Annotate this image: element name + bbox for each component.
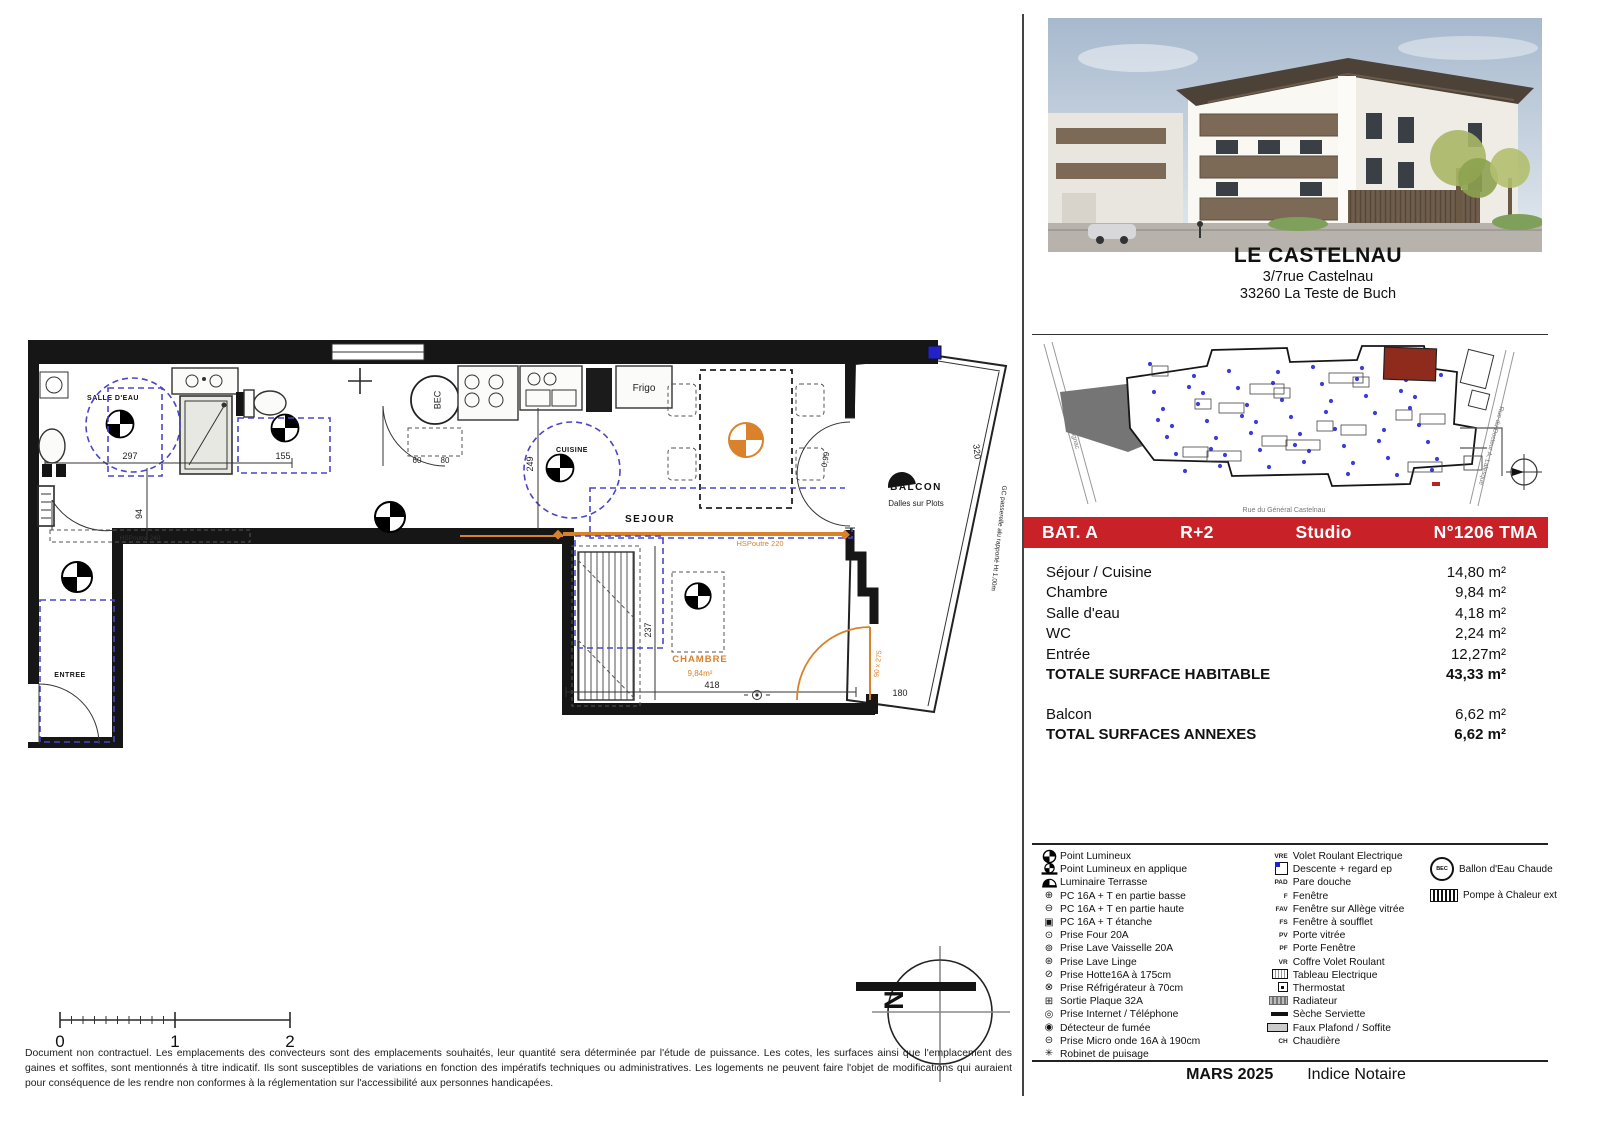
wardrobe	[578, 552, 634, 700]
unit-highlight	[1383, 347, 1436, 381]
legend-label: Prise Lave Vaisselle 20A	[1060, 943, 1173, 954]
legend-item: Point Lumineux	[1038, 850, 1264, 863]
room-label-sejour: SEJOUR	[625, 514, 675, 525]
pac-icon	[1430, 889, 1458, 902]
legend-column-1: Point LumineuxPoint Lumineux en applique…	[1032, 850, 1264, 1060]
legend-item: Faux Plafond / Soffite	[1264, 1021, 1430, 1034]
legend-abbr: FS	[1264, 919, 1288, 926]
legend-abbr: PAD	[1264, 879, 1288, 886]
legend-item: ⊚Prise Lave Vaisselle 20A	[1038, 942, 1264, 955]
legend-label: Porte vitrée	[1293, 930, 1346, 941]
legend-item: FAVFenêtre sur Allège vitrée	[1264, 903, 1430, 916]
legend-column-2: VREVolet Roulant ElectriqueDescente + re…	[1264, 850, 1430, 1060]
descente-ep-icon	[1264, 862, 1288, 877]
legend-label: Pompe à Chaleur ext	[1463, 890, 1557, 901]
info-panel: LE CASTELNAU 3/7rue Castelnau 33260 La T…	[1022, 14, 1548, 1096]
surface-row: Entrée12,27m²	[1046, 644, 1508, 665]
project-address-1: 3/7rue Castelnau	[1088, 269, 1548, 285]
legend-item: PVPorte vitrée	[1264, 929, 1430, 942]
surface-label: Chambre	[1046, 584, 1396, 601]
floor-plan-drawing: BALCON Dalles sur Plots 320 180 GC passe…	[0, 0, 1020, 1130]
seche-serviette-icon	[1264, 1011, 1288, 1018]
scale-bar: 0 1 2	[55, 1012, 294, 1051]
banner-type: Studio	[1296, 522, 1352, 543]
prise-hotte-icon: ⊘	[1038, 970, 1060, 980]
thermostat-icon	[1264, 982, 1288, 994]
footer: MARS 2025 Indice Notaire	[1034, 1066, 1558, 1084]
banner-batiment: BAT. A	[1042, 522, 1098, 543]
title-block: LE CASTELNAU 3/7rue Castelnau 33260 La T…	[1024, 244, 1548, 302]
robinet-puisage-icon: ✳	[1038, 1049, 1060, 1059]
legend-abbr: FAV	[1264, 906, 1288, 913]
surface-value: 12,27m²	[1396, 646, 1508, 663]
radiateur-icon	[1264, 996, 1288, 1007]
terrace-light-icon	[729, 423, 763, 457]
legend-label: Point Lumineux	[1060, 851, 1131, 862]
legend-item: Descente + regard ep	[1264, 863, 1430, 876]
legend-item: CHChaudière	[1264, 1035, 1430, 1048]
legend-item: PFPorte Fenêtre	[1264, 942, 1430, 955]
legend-label: Fenêtre sur Allège vitrée	[1293, 904, 1405, 915]
legend-label: Coffre Volet Roulant	[1293, 957, 1385, 968]
legend-label: Fenêtre à soufflet	[1293, 917, 1373, 928]
toilet	[254, 391, 286, 415]
legend-item: VREVolet Roulant Electrique	[1264, 850, 1430, 863]
legend-item: Radiateur	[1264, 995, 1430, 1008]
legend-item: FSFenêtre à soufflet	[1264, 916, 1430, 929]
legend-label: PC 16A + T en partie haute	[1060, 904, 1184, 915]
building-photo	[1048, 18, 1542, 252]
surface-label: WC	[1046, 625, 1396, 642]
unit-banner: BAT. A R+2 Studio N°1206 TMA	[1024, 517, 1548, 548]
surface-label: Balcon	[1046, 706, 1396, 723]
legend-column-3: BECBallon d'Eau ChaudePompe à Chaleur ex…	[1430, 850, 1548, 1060]
compass-n: N	[879, 990, 909, 1010]
legend-label: Volet Roulant Electrique	[1293, 851, 1403, 862]
surface-label: TOTALE SURFACE HABITABLE	[1046, 666, 1396, 683]
legend-item: ◎Prise Internet / Téléphone	[1038, 1008, 1264, 1021]
surface-value: 2,24 m²	[1396, 625, 1508, 642]
legend-label: PC 16A + T étanche	[1060, 917, 1152, 928]
legend-item: ▣PC 16A + T étanche	[1038, 916, 1264, 929]
legend-label: Faux Plafond / Soffite	[1293, 1023, 1391, 1034]
legend-item: ⊞Sortie Plaque 32A	[1038, 995, 1264, 1008]
legend-item: ✳Robinet de puisage	[1038, 1048, 1264, 1061]
legend-label: Point Lumineux en applique	[1060, 864, 1187, 875]
salle-deau: SALLE D'EAU 297 155 94	[40, 368, 330, 540]
prise-ll-icon: ⊛	[1038, 957, 1060, 967]
toilet	[39, 429, 65, 463]
dim-320: 320	[971, 444, 983, 460]
legend-label: Radiateur	[1293, 996, 1338, 1007]
legend-abbr: F	[1264, 893, 1288, 900]
legend-item: ⊛Prise Lave Linge	[1038, 956, 1264, 969]
surface-value: 43,33 m²	[1396, 666, 1508, 683]
legend-item: FFenêtre	[1264, 890, 1430, 903]
legend-label: Prise Micro onde 16A à 190cm	[1060, 1036, 1200, 1047]
red-mark	[1432, 482, 1440, 486]
prise-internet-icon: ◎	[1038, 1010, 1060, 1020]
project-address-2: 33260 La Teste de Buch	[1088, 286, 1548, 302]
legend-label: Sèche Serviette	[1293, 1009, 1366, 1020]
legend-item: Point Lumineux en applique	[1038, 863, 1264, 876]
legend-item: Tableau Electrique	[1264, 969, 1430, 982]
dim-099: 0,99	[820, 451, 832, 468]
dim-60: 60	[413, 456, 422, 465]
kitchen-window	[332, 344, 424, 394]
legend-label: PC 16A + T en partie basse	[1060, 891, 1186, 902]
beam-label-240: HSPoutre 240	[120, 535, 161, 542]
legend-item: VRCoffre Volet Roulant	[1264, 956, 1430, 969]
car	[1088, 224, 1136, 239]
legend-item: ⊘Prise Hotte16A à 175cm	[1038, 969, 1264, 982]
banner-floor: R+2	[1180, 522, 1214, 543]
room-label-cuisine: CUISINE	[556, 447, 588, 454]
dim-249: 249	[525, 456, 535, 471]
surface-label: Entrée	[1046, 646, 1396, 663]
legend-abbr: CH	[1264, 1038, 1288, 1045]
chambre: CHAMBRE 9,84m² 237 418 90 x 275	[566, 536, 884, 706]
prise-frigo-icon: ⊗	[1038, 983, 1060, 993]
surface-value: 6,62 m²	[1396, 706, 1508, 723]
legend-abbr: VR	[1264, 959, 1288, 966]
legend-item: ◉Détecteur de fumée	[1038, 1021, 1264, 1034]
disclaimer-text: Document non contractuel. Les emplacemen…	[25, 1047, 1012, 1091]
tableau-electrique-icon	[1264, 969, 1288, 981]
fridge-label: Frigo	[633, 383, 656, 394]
surface-label: Salle d'eau	[1046, 605, 1396, 622]
prise-four-icon: ⊙	[1038, 931, 1060, 941]
floor-plan-document: BALCON Dalles sur Plots 320 180 GC passe…	[0, 0, 1600, 1130]
legend-item: Pompe à Chaleur ext	[1430, 882, 1548, 908]
descente-ep-icon	[928, 346, 941, 359]
prise-micro-onde-icon: ⊝	[1038, 1036, 1060, 1046]
surface-row: Chambre9,84 m²	[1046, 583, 1508, 604]
room-label-entree: ENTREE	[54, 672, 85, 679]
pc-etanche-icon: ▣	[1038, 918, 1060, 928]
legend-label: Porte Fenêtre	[1293, 943, 1356, 954]
street-bottom-label: Rue du Général Castelnau	[1243, 507, 1326, 514]
surface-value: 9,84 m²	[1396, 584, 1508, 601]
legend-label: Détecteur de fumée	[1060, 1023, 1150, 1034]
dim-155: 155	[275, 451, 290, 461]
guardrail-note: GC passerelle alu rapporté Ht 1,00m	[989, 485, 1007, 591]
bec-label: BEC	[432, 390, 442, 409]
bec-icon: BEC	[1430, 857, 1454, 881]
dim-418: 418	[704, 680, 719, 690]
legend-label: Tableau Electrique	[1293, 970, 1378, 981]
legend-label: Descente + regard ep	[1293, 864, 1392, 875]
beam-label-220: HSPoutre 220	[736, 539, 783, 548]
legend: Point LumineuxPoint Lumineux en applique…	[1032, 843, 1548, 1062]
footer-date: MARS 2025	[1186, 1066, 1273, 1084]
pc-basse-icon: ⊕	[1038, 891, 1060, 901]
faux-plafond-icon	[1264, 1023, 1288, 1034]
surface-value: 6,62 m²	[1396, 726, 1508, 743]
dim-80: 80	[441, 456, 450, 465]
room-label-chambre: CHAMBRE	[672, 654, 728, 665]
legend-label: Fenêtre	[1293, 891, 1329, 902]
site-plan: Rue Pierre Dignac Rue du Docteur A. Lale…	[1032, 336, 1550, 516]
legend-item: Thermostat	[1264, 982, 1430, 995]
footer-index: Indice Notaire	[1307, 1066, 1406, 1084]
project-name: LE CASTELNAU	[1088, 244, 1548, 268]
separator	[1032, 334, 1548, 335]
surface-row: TOTAL SURFACES ANNEXES6,62 m²	[1046, 725, 1508, 746]
legend-label: Prise Hotte16A à 175cm	[1060, 970, 1171, 981]
shower	[180, 396, 232, 474]
cyclist	[1197, 221, 1203, 227]
legend-item: ⊙Prise Four 20A	[1038, 929, 1264, 942]
legend-label: Sortie Plaque 32A	[1060, 996, 1143, 1007]
legend-label: Robinet de puisage	[1060, 1049, 1149, 1060]
detecteur-fumee-icon: ◉	[1038, 1023, 1060, 1033]
legend-abbr: VRE	[1264, 853, 1288, 860]
legend-label: Prise Internet / Téléphone	[1060, 1009, 1178, 1020]
legend-item: ⊕PC 16A + T en partie basse	[1038, 890, 1264, 903]
legend-label: Pare douche	[1293, 877, 1351, 888]
legend-item: ⊗Prise Réfrigérateur à 70cm	[1038, 982, 1264, 995]
surface-label: Séjour / Cuisine	[1046, 564, 1396, 581]
legend-label: Prise Réfrigérateur à 70cm	[1060, 983, 1183, 994]
wc	[38, 429, 116, 531]
legend-label: Luminaire Terrasse	[1060, 877, 1147, 888]
surface-row: Salle d'eau4,18 m²	[1046, 603, 1508, 624]
dim-297: 297	[122, 451, 137, 461]
legend-item: ⊖PC 16A + T en partie haute	[1038, 903, 1264, 916]
legend-item: Luminaire Terrasse	[1038, 876, 1264, 889]
legend-abbr: PV	[1264, 932, 1288, 939]
legend-label: Chaudière	[1293, 1036, 1341, 1047]
surface-row: TOTALE SURFACE HABITABLE43,33 m²	[1046, 665, 1508, 686]
prise-lv-icon: ⊚	[1038, 944, 1060, 954]
surface-table: Séjour / Cuisine14,80 m²Chambre9,84 m²Sa…	[1046, 562, 1508, 745]
legend-abbr: PF	[1264, 945, 1288, 952]
pc-haute-icon: ⊖	[1038, 904, 1060, 914]
surface-value: 14,80 m²	[1396, 564, 1508, 581]
surface-row: Séjour / Cuisine14,80 m²	[1046, 562, 1508, 583]
dim-237: 237	[643, 622, 653, 637]
legend-item: BECBallon d'Eau Chaude	[1430, 856, 1548, 882]
banner-unit-number: N°1206 TMA	[1434, 522, 1538, 543]
sortie-plaque-icon: ⊞	[1038, 997, 1060, 1007]
oven	[586, 368, 612, 412]
surface-value: 4,18 m²	[1396, 605, 1508, 622]
surface-label: TOTAL SURFACES ANNEXES	[1046, 726, 1396, 743]
legend-item: ⊝Prise Micro onde 16A à 190cm	[1038, 1035, 1264, 1048]
legend-label: Prise Four 20A	[1060, 930, 1129, 941]
dim-180: 180	[892, 688, 907, 698]
dim-94: 94	[134, 509, 144, 519]
legend-item: Sèche Serviette	[1264, 1008, 1430, 1021]
luminaire-terrasse-icon	[1038, 877, 1060, 888]
legend-item: PADPare douche	[1264, 876, 1430, 889]
balcony: BALCON Dalles sur Plots 320 180 GC passe…	[847, 356, 1008, 712]
legend-label: Thermostat	[1293, 983, 1345, 994]
surface-row: Balcon6,62 m²	[1046, 704, 1508, 725]
surface-row: WC2,24 m²	[1046, 624, 1508, 645]
legend-label: Ballon d'Eau Chaude	[1459, 864, 1553, 875]
legend-label: Prise Lave Linge	[1060, 957, 1137, 968]
balcon-note: Dalles sur Plots	[888, 499, 944, 508]
point-lumineux-applique-icon	[1038, 863, 1060, 877]
entree: ENTREE HSPoutre 240	[28, 530, 250, 744]
chambre-area: 9,84m²	[688, 669, 713, 678]
cuisine: BEC Frigo 60 80 CUISINE 249	[383, 366, 672, 530]
